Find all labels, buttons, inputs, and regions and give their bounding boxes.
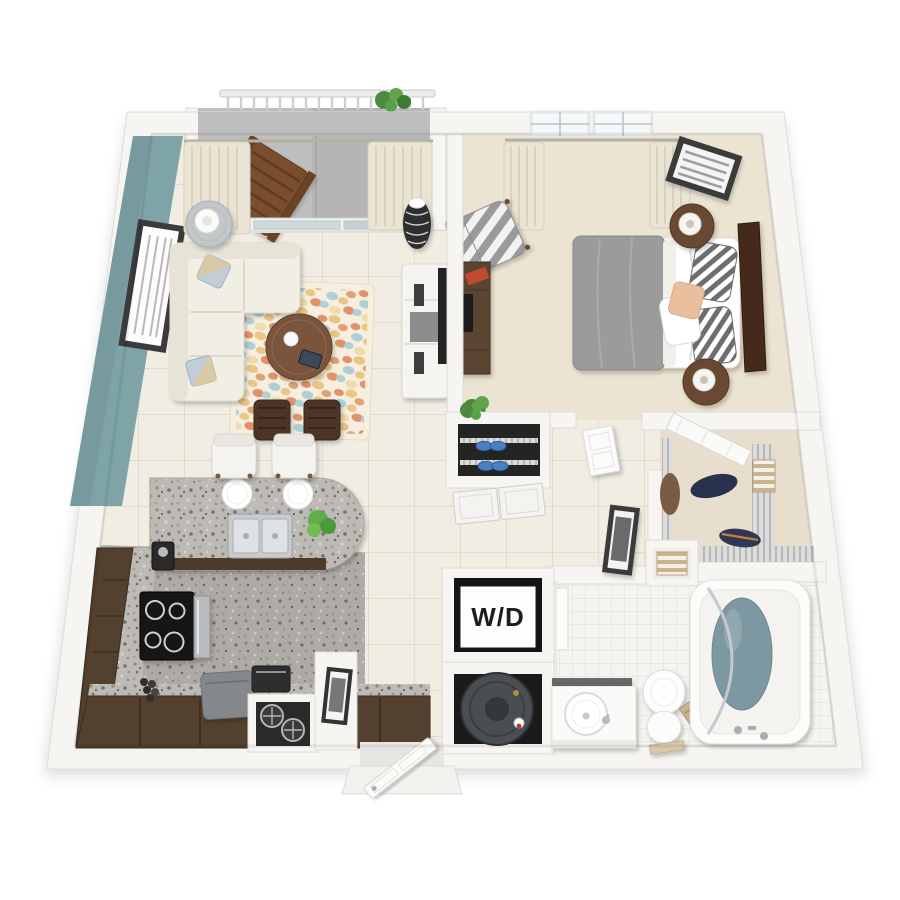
bathroom-top-wall bbox=[546, 566, 658, 584]
pitcher-icon bbox=[284, 332, 298, 346]
kitchen-island bbox=[150, 478, 364, 570]
av-component-icon bbox=[410, 312, 438, 342]
tv-icon bbox=[438, 268, 447, 364]
oven-door bbox=[194, 596, 210, 658]
wire-basket-shelf bbox=[248, 694, 318, 752]
side-table-with-lamp bbox=[186, 201, 232, 247]
balcony-opening bbox=[198, 112, 430, 136]
pony-wall bbox=[315, 652, 357, 750]
folded-towels-icon bbox=[657, 552, 687, 575]
utility-closet bbox=[442, 662, 554, 754]
laundry-closet: W/D bbox=[442, 568, 554, 662]
island-base-cabinets bbox=[150, 558, 326, 570]
floor-plan-svg: W/D bbox=[0, 0, 900, 900]
washer-dryer-label: W/D bbox=[471, 602, 525, 632]
towel-cubby bbox=[646, 540, 698, 586]
bathtub bbox=[690, 580, 810, 744]
nightstand bbox=[670, 204, 714, 248]
bar-stool bbox=[212, 434, 256, 479]
hall-closet bbox=[446, 400, 550, 525]
range-cooktop bbox=[140, 592, 210, 660]
coffee-maker-icon bbox=[152, 542, 174, 570]
mirror-icon bbox=[552, 678, 632, 686]
living-bedroom-wall bbox=[447, 134, 463, 418]
nightstand bbox=[683, 359, 729, 405]
gray-duvet bbox=[573, 236, 665, 370]
vanity bbox=[552, 678, 636, 748]
gray-cart bbox=[200, 670, 255, 720]
bed bbox=[573, 222, 766, 372]
coffee-table bbox=[266, 314, 332, 380]
speaker-icon bbox=[414, 284, 424, 306]
water-heater-icon bbox=[461, 673, 533, 745]
bar-stool bbox=[272, 434, 316, 479]
wire-shelving bbox=[700, 546, 814, 562]
bathroom-door bbox=[556, 588, 568, 650]
folded-towels-icon bbox=[753, 460, 775, 492]
bedroom-wall-segment bbox=[548, 412, 576, 428]
floor-plan-image: W/D bbox=[0, 0, 900, 900]
speaker-icon bbox=[414, 352, 424, 374]
countertop-appliance-icon bbox=[252, 666, 290, 692]
tv-console bbox=[402, 264, 448, 398]
